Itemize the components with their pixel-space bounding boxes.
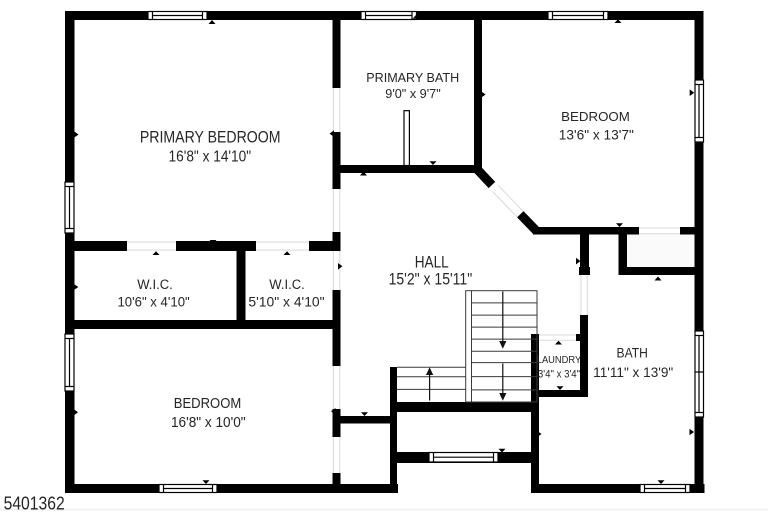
svg-text:15'2" x 15'11": 15'2" x 15'11" <box>389 271 473 289</box>
svg-text:BEDROOM: BEDROOM <box>561 109 630 124</box>
svg-text:9'0" x 9'7": 9'0" x 9'7" <box>385 86 441 101</box>
svg-text:16'8" x 14'10": 16'8" x 14'10" <box>169 148 252 165</box>
svg-text:BEDROOM: BEDROOM <box>174 395 242 412</box>
svg-text:BATH: BATH <box>617 344 648 360</box>
svg-text:13'6" x 13'7": 13'6" x 13'7" <box>559 127 634 143</box>
svg-text:16'8" x 10'0": 16'8" x 10'0" <box>171 414 246 431</box>
svg-text:W.I.C.: W.I.C. <box>269 276 305 292</box>
svg-text:W.I.C.: W.I.C. <box>137 276 173 292</box>
svg-text:PRIMARY BEDROOM: PRIMARY BEDROOM <box>140 128 281 147</box>
svg-text:5401362: 5401362 <box>4 493 65 512</box>
svg-text:LAUNDRY: LAUNDRY <box>537 355 582 366</box>
svg-text:3'4" x 3'4": 3'4" x 3'4" <box>538 368 580 380</box>
svg-text:PRIMARY BATH: PRIMARY BATH <box>366 70 459 85</box>
svg-text:10'6" x 4'10": 10'6" x 4'10" <box>117 294 189 310</box>
svg-text:HALL: HALL <box>415 253 449 271</box>
svg-text:11'11" x 13'9": 11'11" x 13'9" <box>593 364 673 380</box>
svg-text:5'10" x 4'10": 5'10" x 4'10" <box>248 294 324 310</box>
